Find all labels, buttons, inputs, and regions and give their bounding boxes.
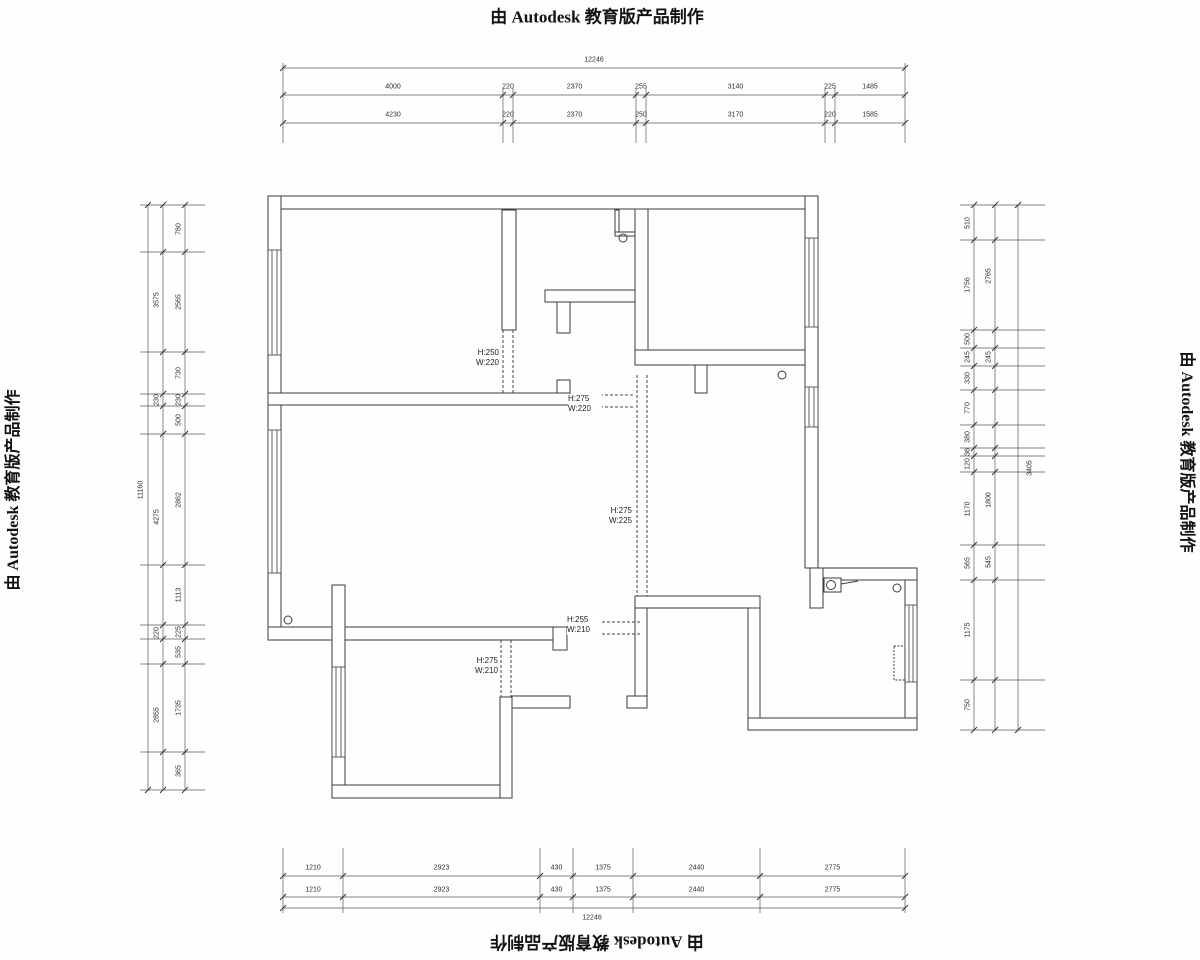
dimension-text: 1375 <box>595 887 611 894</box>
dimension-text: 4275 <box>154 509 161 525</box>
dimension-text: 11160 <box>138 481 145 499</box>
dimension-text: 780 <box>176 223 183 235</box>
dimension-text: 2923 <box>434 887 450 894</box>
wall-segment <box>268 196 818 209</box>
dimension-text: 2855 <box>154 707 161 723</box>
dimension-text: 1585 <box>862 112 878 119</box>
wall-segment <box>553 627 567 650</box>
fixture-symbol <box>284 616 292 624</box>
wall-segment <box>557 302 570 333</box>
wall-segment <box>268 393 570 405</box>
dimension-text: 770 <box>965 402 972 414</box>
dimension-text: 12246 <box>582 915 601 922</box>
dimension-text: 1756 <box>965 277 972 293</box>
dimension-text: 535 <box>176 646 183 658</box>
dimension-text: 565 <box>965 557 972 569</box>
dimension-text: 2565 <box>176 294 183 310</box>
dimension-text: 365 <box>176 765 183 777</box>
dimension-text: 1485 <box>862 84 878 91</box>
wall-segment <box>502 210 516 330</box>
dimension-text: 330 <box>965 372 972 384</box>
window-symbol <box>805 238 818 327</box>
wall-segment <box>545 290 648 302</box>
dimension-text: 1175 <box>965 622 972 637</box>
dimension-text: 220 <box>502 84 514 91</box>
opening-label: H:275W:220 <box>568 394 602 414</box>
dimension-text: 500 <box>176 414 183 426</box>
dimension-text: 1210 <box>305 887 321 894</box>
window-symbol <box>332 667 345 757</box>
dimension-text: 220 <box>502 112 514 119</box>
dimension-text: 2923 <box>434 865 450 872</box>
wall-segment <box>748 608 760 718</box>
dimension-text: 220 <box>154 627 161 639</box>
dimension-text: 430 <box>551 865 563 872</box>
fixture-symbol <box>893 584 901 592</box>
dimension-text: 2370 <box>567 112 583 119</box>
dimension-text: 36 <box>965 448 972 456</box>
wall-segment <box>748 718 917 730</box>
dimension-text: 750 <box>965 699 972 711</box>
dimension-text: 120 <box>965 458 972 470</box>
wall-segment <box>635 596 760 608</box>
dimension-text: 3170 <box>728 112 744 119</box>
dimension-text: 245 <box>965 351 972 363</box>
wall-segment <box>268 196 917 798</box>
window-symbol <box>905 605 917 682</box>
dimension-text: 220 <box>824 112 836 119</box>
dimension-text: 1210 <box>305 865 321 872</box>
dimension-text: 430 <box>551 887 563 894</box>
dimension-text: 4000 <box>385 84 401 91</box>
cad-sheet: 由 Autodesk 教育版产品制作 由 Autodesk 教育版产品制作 由 … <box>0 0 1200 960</box>
wall-segment <box>557 380 570 393</box>
dimension-text: 2440 <box>689 865 705 872</box>
dimension-text: 1735 <box>176 700 183 716</box>
floor-plan-drawing <box>0 0 1200 960</box>
dimension-text: 250 <box>635 112 647 119</box>
wall-segment <box>268 627 553 640</box>
dimension-text: 510 <box>965 217 972 229</box>
dimension-text: 1800 <box>986 492 993 508</box>
opening-label: H:250W:220 <box>459 348 499 368</box>
dimension-text: 1375 <box>595 865 611 872</box>
dimension-text: 245 <box>986 351 993 363</box>
wall-segment <box>635 209 648 365</box>
fixture-symbol <box>778 371 786 379</box>
window-symbol <box>268 430 281 573</box>
dimension-text: 12246 <box>584 57 603 64</box>
window-symbol <box>268 250 281 355</box>
fixture-symbol <box>841 581 858 584</box>
dimension-text: 255 <box>635 84 647 91</box>
dimension-text: 4230 <box>385 112 401 119</box>
window-symbol <box>805 387 818 427</box>
dimension-text: 2765 <box>986 268 993 284</box>
dimension-text: 2862 <box>176 492 183 508</box>
dimension-text: 2370 <box>567 84 583 91</box>
dimension-text: 2775 <box>825 865 841 872</box>
opening-label: H:255W:210 <box>567 615 601 635</box>
dimension-text: 230 <box>154 394 161 406</box>
dimension-text: 1113 <box>176 588 183 603</box>
wall-segment <box>695 365 707 393</box>
wall-segment <box>635 350 805 365</box>
dimension-text: 3575 <box>154 292 161 308</box>
wall-segment <box>332 785 512 798</box>
dimension-text: 230 <box>176 394 183 406</box>
dimension-text: 2440 <box>689 887 705 894</box>
dimension-text: 380 <box>965 431 972 443</box>
dimension-text: 3405 <box>1027 460 1034 476</box>
dimension-text: 225 <box>824 84 836 91</box>
dimension-text: 2775 <box>825 887 841 894</box>
dimension-text: 1170 <box>965 501 972 516</box>
wall-segment <box>810 568 823 608</box>
dimension-text: 3140 <box>728 84 744 91</box>
wall-segment <box>627 696 647 708</box>
window-symbol <box>268 238 917 757</box>
wall-segment <box>512 696 570 708</box>
dimension-text: 500 <box>965 333 972 345</box>
fixture-symbol <box>894 646 905 680</box>
dimension-text: 545 <box>986 556 993 568</box>
opening-label: H:275W:225 <box>594 506 632 526</box>
dimension-text: 730 <box>176 367 183 379</box>
dimension-text: 225 <box>176 626 183 638</box>
opening-label: H:275W:210 <box>458 656 498 676</box>
wall-segment <box>500 697 512 798</box>
wall-segment <box>635 608 647 708</box>
